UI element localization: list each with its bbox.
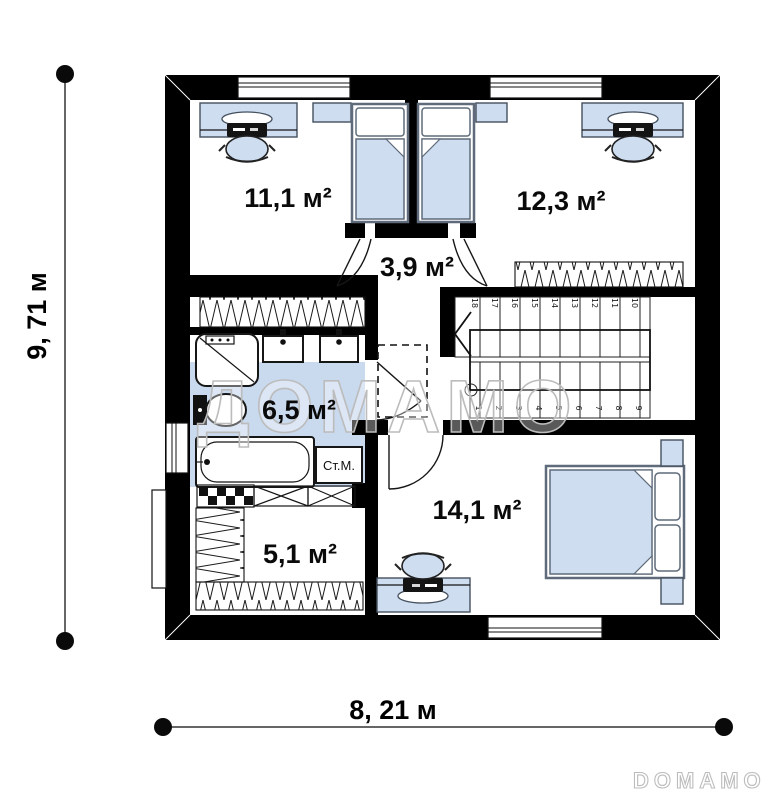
wardrobe-strip-bedroom-2: [515, 262, 683, 287]
room-label-bedroom-2: 12,3 м²: [516, 186, 605, 216]
stair-step-number: 9: [634, 405, 643, 410]
dimension-left: 9, 71 м: [22, 65, 74, 650]
shelf-icon: [476, 103, 507, 122]
room-label-bathroom: 6,5 м²: [262, 395, 336, 425]
shelf-icon: [313, 103, 351, 122]
stair-step-number: 12: [590, 298, 599, 308]
stair-step-number: 10: [630, 298, 639, 308]
stair-step-number: 15: [530, 298, 539, 308]
stair-step-number: 7: [594, 405, 603, 410]
stair-step-numbers-upper: 18 17 16 15 14 13 12 11 10: [470, 298, 639, 308]
bed-icon: [418, 104, 474, 222]
height-dimension-label: 9, 71 м: [22, 272, 52, 360]
stair-direction-arrow-icon: [455, 312, 471, 356]
room-label-bedroom-3: 14,1 м²: [432, 495, 521, 525]
stair-step-number: 14: [550, 298, 559, 308]
bathroom-cabinet-strip: [197, 485, 355, 507]
floor-plan-svg: 9, 71 м 8, 21 м: [0, 0, 781, 800]
room-label-wardrobe: 5,1 м²: [263, 539, 337, 569]
bedroom-3-furniture: [377, 440, 684, 612]
nightstand-icon: [661, 578, 683, 604]
watermark-corner: DOMAMO: [633, 768, 766, 793]
width-dimension-label: 8, 21 м: [349, 695, 437, 725]
window-bottom: [488, 617, 602, 638]
stair-step-number: 8: [614, 405, 623, 410]
double-bed-icon: [546, 466, 684, 578]
window-left: [166, 423, 188, 473]
bed-icon: [352, 104, 408, 222]
stair-step-number: 13: [570, 298, 579, 308]
stair-step-number: 17: [490, 298, 499, 308]
floor-plan-page: 9, 71 м 8, 21 м: [0, 0, 781, 800]
washing-machine-label: Ст.М.: [323, 458, 355, 473]
room-label-bedroom-1: 11,1 м²: [244, 183, 332, 213]
nightstand-icon: [661, 440, 683, 466]
room-label-hall: 3,9 м²: [380, 252, 454, 282]
stair-step-number: 18: [470, 298, 479, 308]
window-top-left: [238, 77, 350, 98]
watermark-center: ДОМАМО: [197, 365, 578, 448]
wall-recess-left: [152, 490, 166, 588]
wardrobe-strip-closet-left: [196, 508, 244, 582]
wardrobe-strip-bathroom-top: [200, 297, 365, 327]
stair-step-number: 16: [510, 298, 519, 308]
wardrobe-strip-closet-bottom: [196, 582, 363, 610]
window-top-right: [490, 77, 602, 98]
dimension-bottom: 8, 21 м: [154, 695, 733, 736]
washing-machine: Ст.М.: [316, 447, 362, 483]
stair-step-number: 11: [610, 298, 619, 308]
